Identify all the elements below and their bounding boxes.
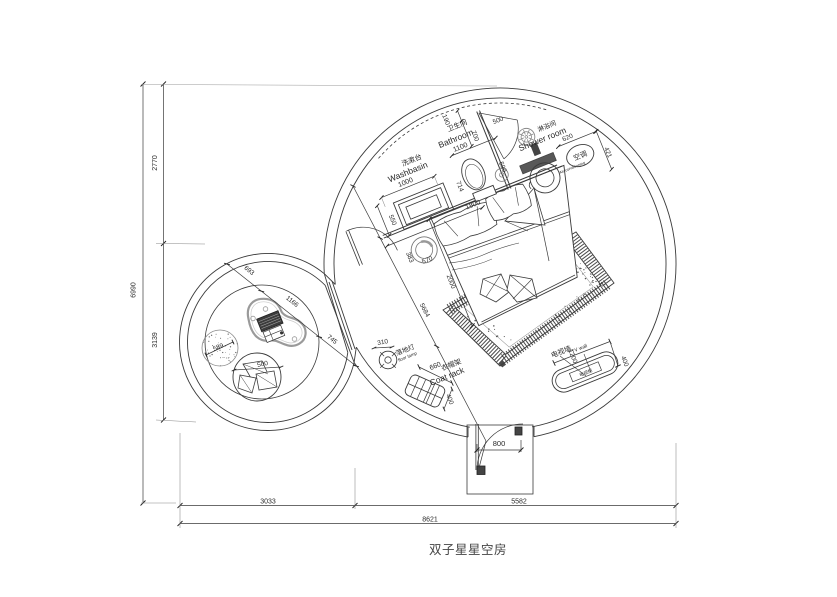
svg-text:6990: 6990 (131, 282, 138, 298)
svg-text:3033: 3033 (260, 499, 276, 506)
svg-text:3139: 3139 (152, 332, 159, 348)
svg-text:5582: 5582 (511, 499, 527, 506)
svg-text:8621: 8621 (422, 517, 438, 524)
svg-text:800: 800 (493, 439, 506, 448)
svg-text:2770: 2770 (152, 155, 159, 171)
svg-text:双子星星空房: 双子星星空房 (429, 542, 507, 557)
